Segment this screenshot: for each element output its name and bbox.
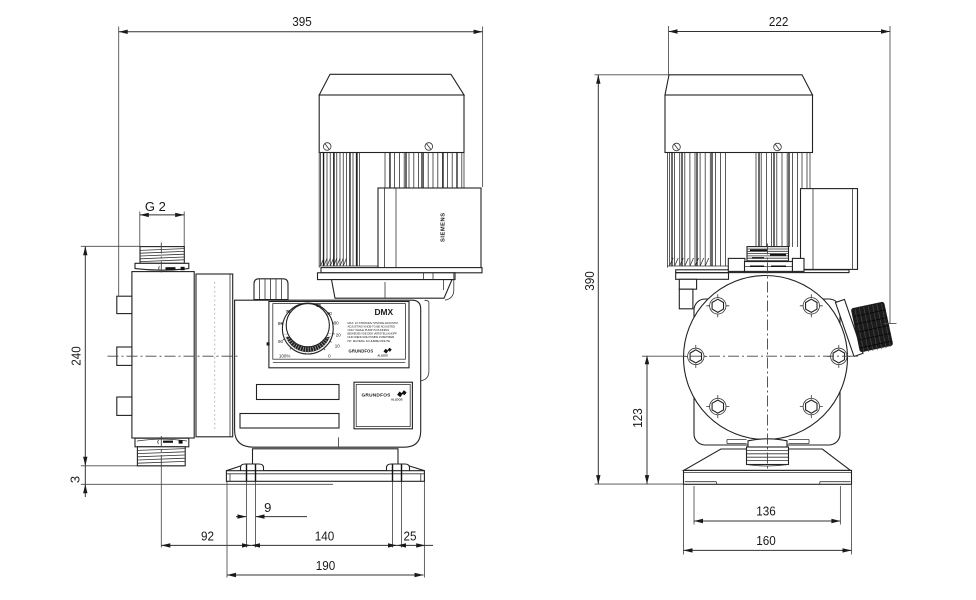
svg-text:50: 50: [316, 303, 322, 308]
svg-text:25: 25: [404, 528, 417, 543]
svg-text:10: 10: [335, 343, 341, 348]
svg-text:3: 3: [68, 476, 83, 483]
svg-text:92: 92: [201, 528, 214, 543]
svg-text:SIEMENS: SIEMENS: [441, 212, 447, 242]
svg-text:100%: 100%: [279, 353, 291, 358]
svg-text:9: 9: [264, 500, 271, 515]
svg-text:70: 70: [285, 309, 291, 314]
svg-text:GRUNDFOS: GRUNDFOS: [349, 349, 374, 354]
svg-text:136: 136: [756, 504, 776, 519]
svg-text:40: 40: [327, 311, 333, 316]
svg-text:ALLDOS: ALLDOS: [378, 355, 389, 358]
svg-text:DMX: DMX: [374, 307, 393, 317]
svg-text:395: 395: [292, 14, 312, 29]
svg-text:G 2: G 2: [145, 199, 166, 214]
svg-text:ALLDOS: ALLDOS: [391, 398, 403, 402]
svg-text:190: 190: [316, 558, 336, 573]
svg-text:90: 90: [278, 339, 284, 344]
svg-text:80: 80: [278, 321, 284, 326]
svg-text:140: 140: [315, 528, 335, 543]
svg-text:240: 240: [69, 346, 84, 366]
svg-text:20: 20: [336, 333, 342, 338]
svg-text:30: 30: [334, 320, 340, 325]
svg-text:160: 160: [756, 533, 776, 548]
svg-text:390: 390: [582, 271, 597, 291]
svg-text:GRUNDFOS: GRUNDFOS: [362, 392, 392, 398]
svg-text:123: 123: [630, 408, 645, 428]
svg-text:222: 222: [769, 14, 789, 29]
svg-text:IST. MAXIMAL 10 HUEBE MINUTE: IST. MAXIMAL 10 HUEBE MINUTE: [348, 339, 391, 343]
